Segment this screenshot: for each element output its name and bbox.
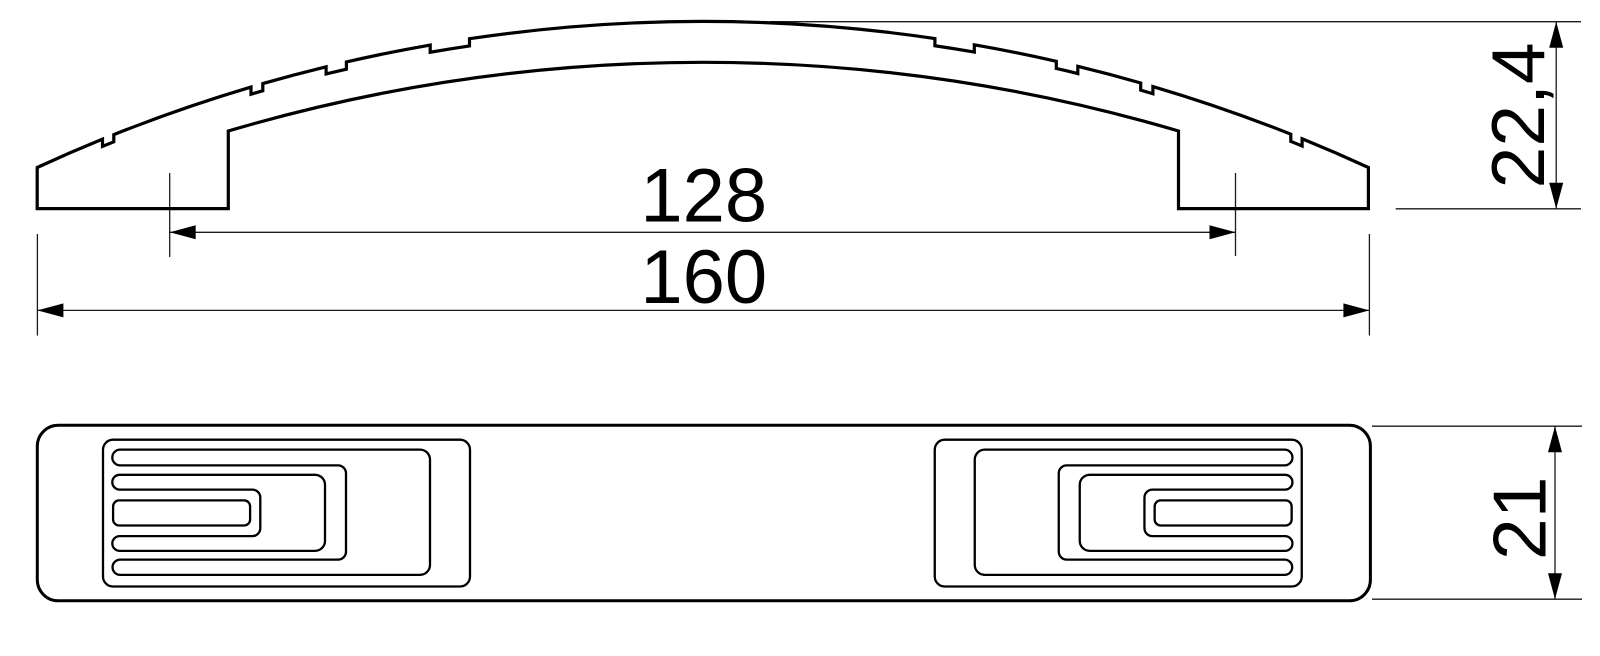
svg-text:128: 128 <box>640 153 767 238</box>
svg-text:160: 160 <box>640 235 767 320</box>
svg-text:21: 21 <box>1478 477 1562 560</box>
svg-text:22,4: 22,4 <box>1476 42 1560 188</box>
